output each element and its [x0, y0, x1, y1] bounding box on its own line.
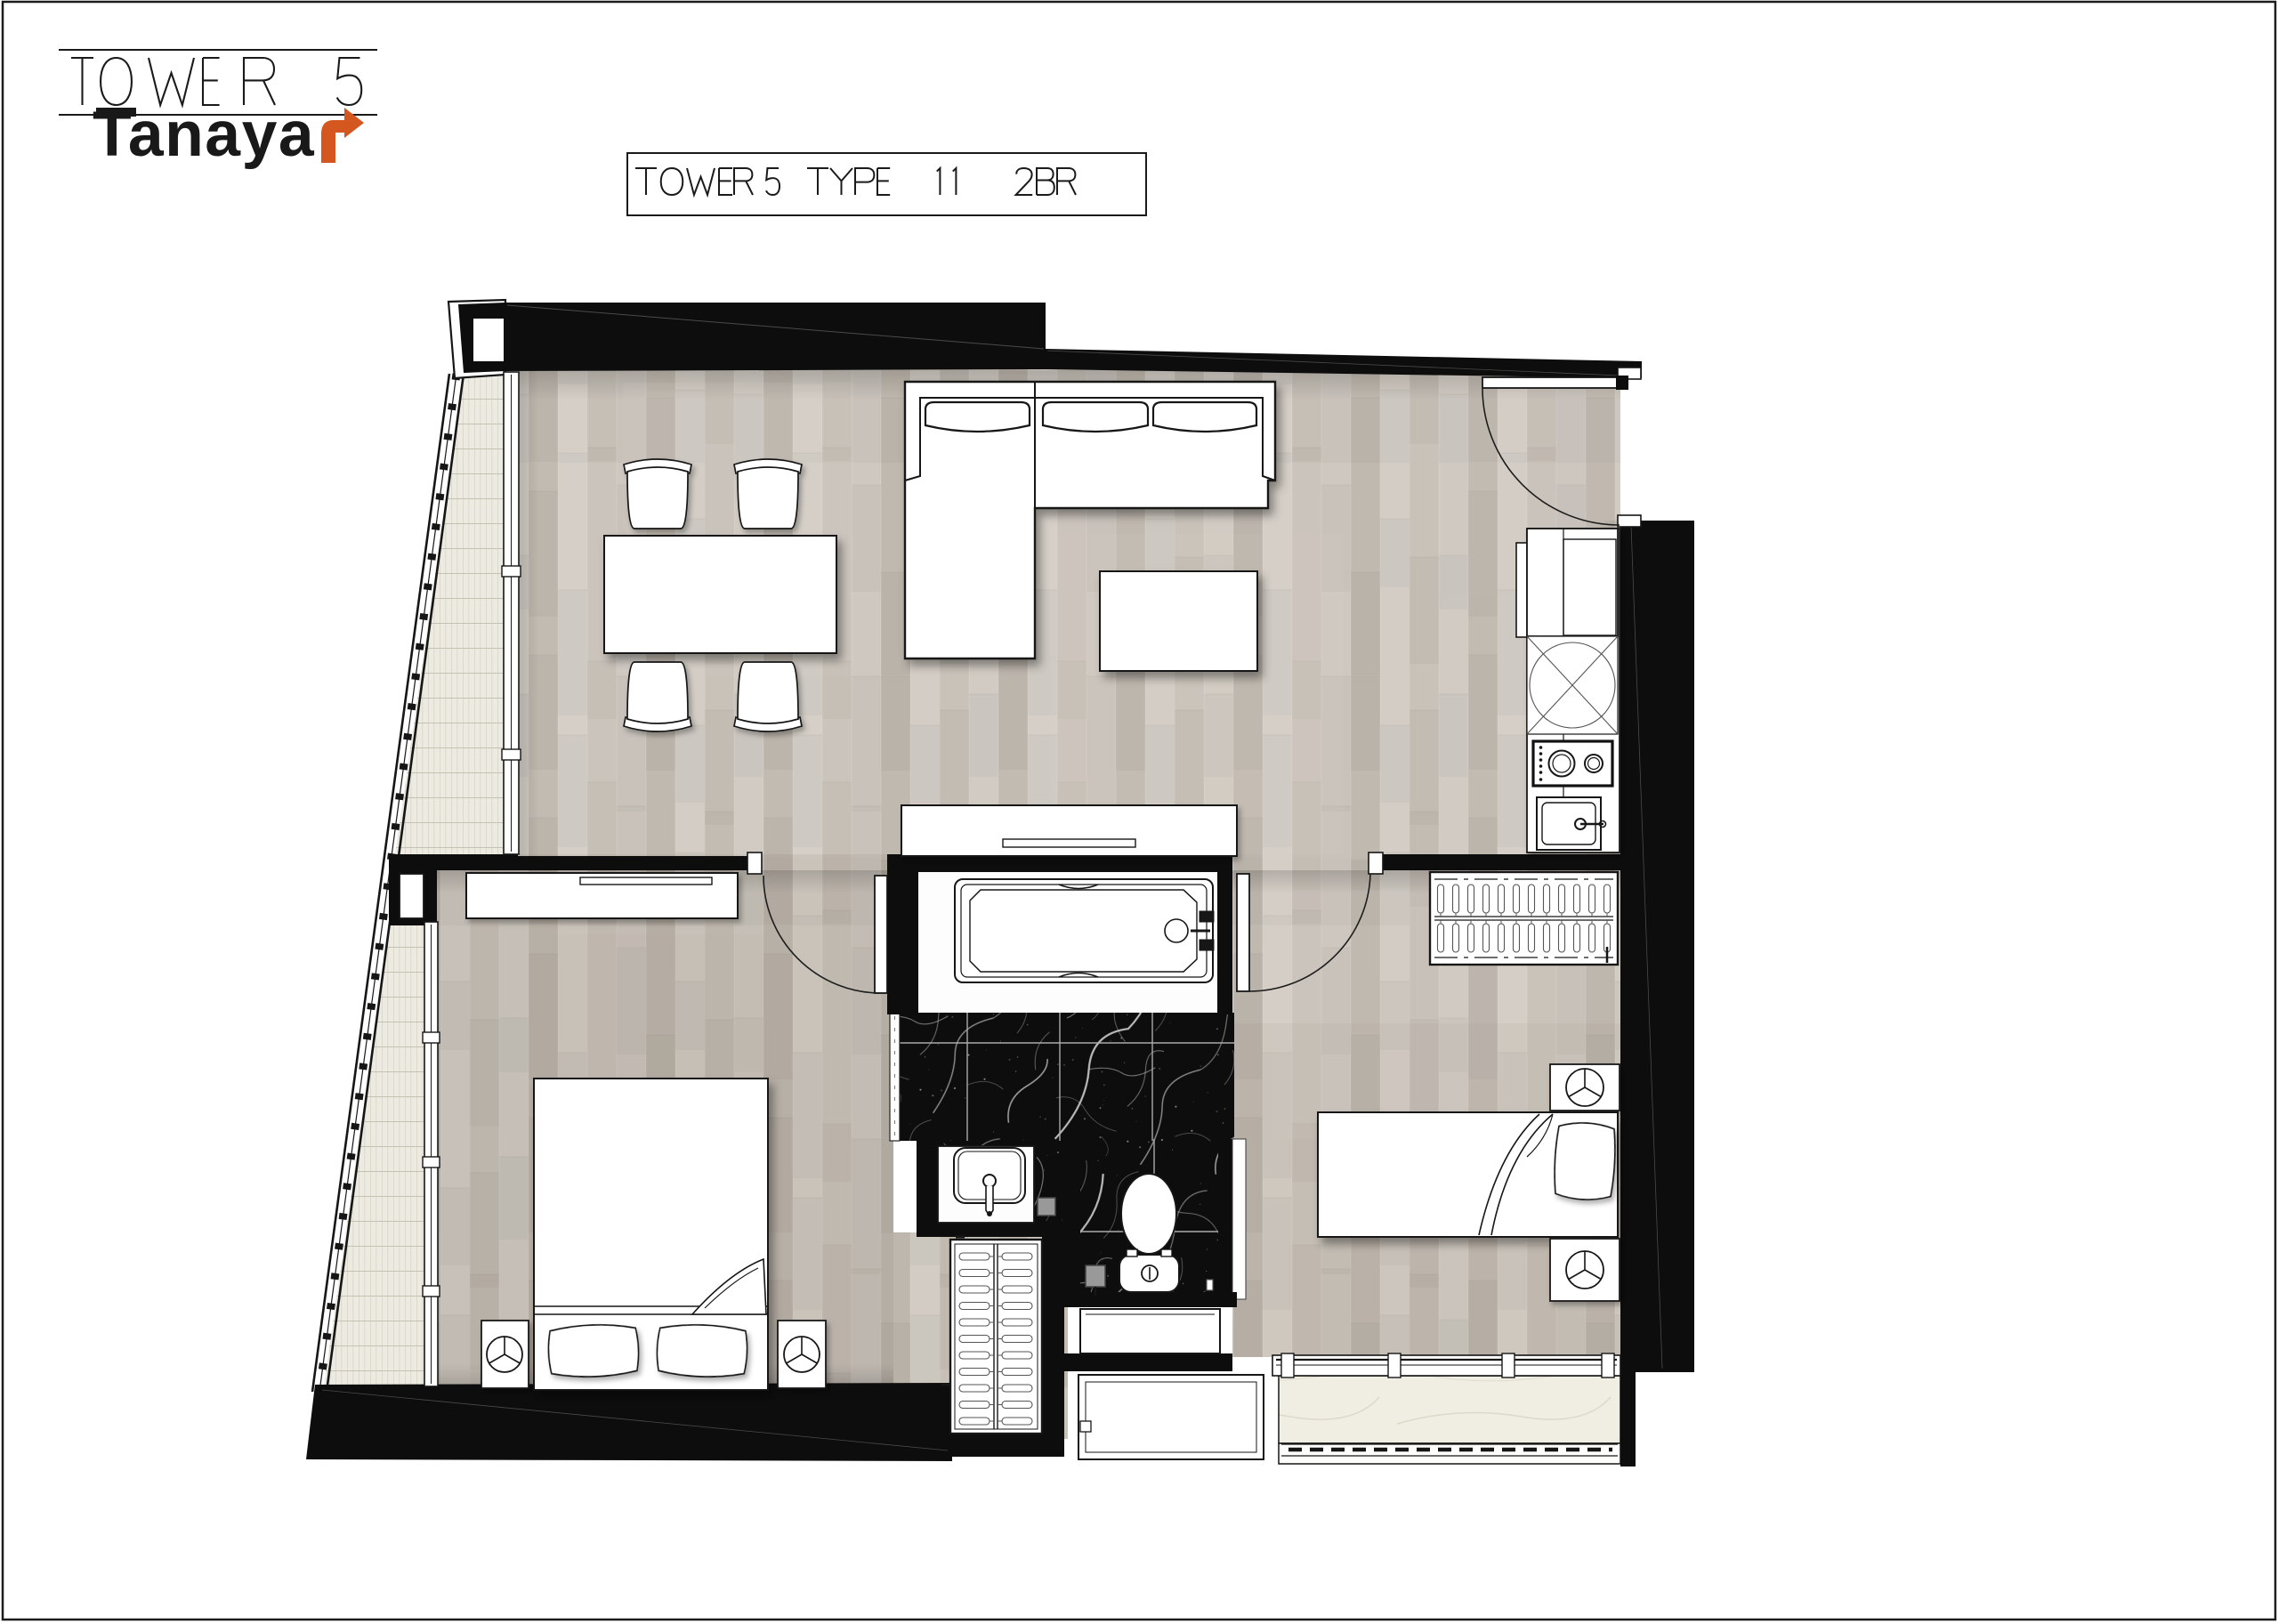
svg-text:Tanaya: Tanaya: [93, 99, 315, 170]
